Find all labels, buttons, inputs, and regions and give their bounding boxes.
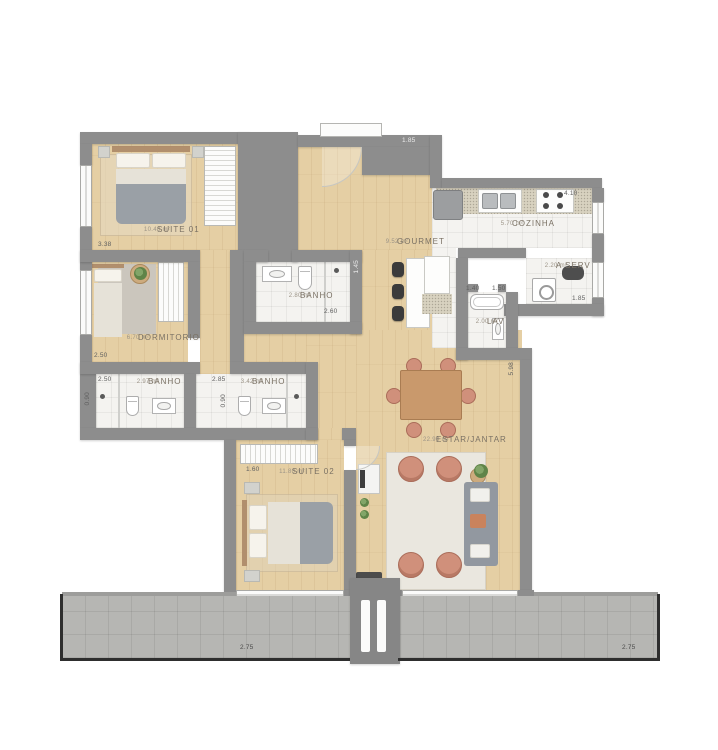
dining-chair — [406, 422, 422, 438]
wall — [184, 374, 196, 428]
door-threshold — [318, 428, 342, 440]
room-name: BANHO — [148, 378, 181, 387]
dim-label: 2.85 — [212, 376, 225, 383]
dim-label: 2.60 — [324, 308, 337, 315]
room-label-dormitorio: DORMITORIO 6.70 m² — [127, 334, 149, 342]
nightstand — [244, 570, 260, 582]
dim-label: 2.50 — [98, 376, 111, 383]
armchair — [398, 456, 424, 482]
room-label-suite01: SUITE 01 10.40 m² — [144, 226, 170, 234]
burner-icon — [557, 192, 563, 198]
shower-head — [100, 394, 105, 399]
window — [592, 202, 604, 234]
burner-icon — [543, 192, 549, 198]
dim-label: 1.85 — [572, 295, 585, 302]
lav-tub — [470, 294, 504, 310]
room-name: DORMITORIO — [138, 334, 200, 343]
room-name: BANHO — [300, 292, 333, 301]
sink-basin — [267, 402, 280, 410]
toilet — [238, 396, 251, 416]
shower-head — [334, 268, 339, 273]
room-name: BANHO — [252, 378, 285, 387]
room-label-suite02: SUITE 02 11.80 m² — [279, 468, 305, 476]
fridge — [433, 190, 463, 220]
wall — [504, 304, 604, 316]
nightstand — [192, 146, 204, 158]
nightstand — [98, 146, 110, 158]
armchair — [436, 552, 462, 578]
bar-stool — [392, 284, 404, 299]
pillow — [152, 153, 186, 168]
balcony-column — [350, 578, 400, 664]
vanity — [152, 398, 176, 414]
room-label-gourmet: GOURMET 9.52 m² — [386, 238, 408, 246]
suite02-bed-sheet — [268, 502, 302, 564]
plant — [360, 498, 369, 507]
room-label-aserv: A SERV 2.20 m² — [545, 262, 567, 270]
wall — [80, 227, 92, 270]
dim-label: 1.50 — [492, 285, 505, 292]
window — [80, 165, 92, 227]
bar-stool — [392, 306, 404, 321]
dormitorio-bed-headboard — [92, 264, 124, 268]
wall — [244, 262, 256, 322]
dim-label: 2.75 — [240, 644, 253, 651]
wall — [362, 147, 432, 175]
burner-icon — [543, 203, 549, 209]
room-name: SUITE 02 — [292, 468, 335, 477]
wall — [80, 362, 200, 374]
plant — [134, 267, 147, 280]
room-name: SUITE 01 — [157, 226, 200, 235]
room-label-cozinha: COZINHA 5.70 m² — [501, 220, 523, 228]
suite02-wardrobe — [240, 444, 318, 464]
dormitorio-bed-sheet — [94, 283, 122, 337]
room-label-banho1: BANHO 2.97 m² — [137, 378, 159, 386]
tv — [360, 470, 365, 488]
suite02-bed-duvet — [300, 502, 333, 564]
wall — [238, 132, 298, 262]
suite01-bed-duvet — [116, 184, 186, 224]
dim-label: 1.45 — [353, 260, 360, 273]
shower-divider — [286, 374, 288, 428]
dim-label: 1.85 — [402, 137, 415, 144]
wall — [456, 348, 532, 360]
room-name: GOURMET — [397, 238, 445, 247]
wall — [244, 250, 268, 262]
dim-label: 3.38 — [98, 241, 111, 248]
vanity — [262, 266, 292, 282]
nightstand — [244, 482, 260, 494]
wall — [344, 440, 356, 446]
entry-door — [320, 123, 382, 137]
balcony-right — [400, 596, 658, 658]
shower-divider — [118, 374, 120, 428]
wall — [442, 178, 602, 188]
armchair — [436, 456, 462, 482]
column-slot — [377, 600, 386, 652]
balcony-railing — [657, 594, 660, 661]
dim-label: 5.98 — [508, 362, 515, 375]
dim-label: 1.60 — [246, 466, 259, 473]
dim-label: 1.40 — [466, 285, 479, 292]
room-label-banho2: BANHO 3.42 m² — [241, 378, 263, 386]
bar-stool — [392, 262, 404, 277]
sink-basin — [157, 402, 170, 410]
kitchen-sink — [500, 193, 516, 209]
burner-icon — [557, 203, 563, 209]
suite01-wardrobe — [204, 146, 236, 226]
suite01-bed-headboard — [112, 146, 190, 152]
column-slot — [361, 600, 370, 652]
wall — [592, 234, 604, 262]
balcony-railing — [398, 658, 660, 661]
pillow — [116, 153, 150, 168]
dining-table — [400, 370, 462, 420]
pillow — [94, 269, 122, 282]
window — [592, 262, 604, 298]
wall — [458, 248, 526, 258]
wall — [430, 135, 442, 188]
room-name: ESTAR/JANTAR — [436, 436, 507, 445]
wall — [80, 428, 306, 440]
floor-plan: SUITE 01 10.40 m² DORMITORIO 6.70 m² BAN… — [0, 0, 718, 750]
balcony-left — [62, 596, 350, 658]
room-label-banho-suite01: BANHO 2.80 m² — [289, 292, 311, 300]
room-name: A SERV — [556, 262, 591, 271]
sink-basin — [269, 270, 286, 278]
wall — [520, 360, 532, 590]
wall — [188, 262, 200, 338]
dim-label: 0.90 — [220, 394, 227, 407]
wall — [80, 250, 200, 262]
suite02-bed-headboard — [242, 500, 247, 566]
sofa-cushion — [470, 544, 490, 558]
granite-counter — [422, 294, 452, 314]
kitchen-island — [424, 256, 450, 294]
dormitorio-wardrobe — [158, 262, 184, 322]
dim-label: 2.50 — [94, 352, 107, 359]
wall — [306, 428, 318, 440]
sofa-cushion — [470, 514, 486, 528]
room-label-estar: ESTAR/JANTAR 22.90 m² — [423, 436, 449, 444]
washing-machine — [532, 278, 556, 302]
wall — [506, 292, 518, 348]
armchair — [398, 552, 424, 578]
balcony-railing — [60, 658, 350, 661]
window — [80, 270, 92, 335]
wall — [244, 322, 362, 334]
wall — [342, 428, 356, 440]
wall — [344, 470, 356, 590]
kitchen-sink — [482, 193, 498, 209]
dim-label: 0.90 — [84, 392, 91, 405]
pillow — [249, 533, 267, 558]
corridor-floor — [200, 250, 230, 362]
wall — [230, 362, 306, 374]
wall — [80, 144, 92, 165]
shower-head — [294, 394, 299, 399]
wall — [230, 250, 244, 362]
wall — [224, 440, 236, 600]
vanity — [262, 398, 286, 414]
suite01-bed-sheet — [116, 169, 186, 184]
wall — [80, 132, 250, 144]
dim-label: 2.75 — [622, 644, 635, 651]
toilet — [126, 396, 139, 416]
pillow — [249, 505, 267, 530]
wall — [456, 258, 468, 360]
sofa-cushion — [470, 488, 490, 502]
plant — [474, 464, 488, 478]
door-threshold — [200, 362, 230, 374]
room-name: LAV — [487, 318, 505, 327]
toilet — [298, 266, 312, 290]
plant — [360, 510, 369, 519]
room-label-lav: LAV 2.00 m² — [476, 318, 498, 326]
dim-label: 4.10 — [564, 190, 577, 197]
dining-chair — [460, 388, 476, 404]
balcony-railing — [60, 594, 63, 660]
room-name: COZINHA — [512, 220, 555, 229]
wall — [592, 188, 604, 202]
